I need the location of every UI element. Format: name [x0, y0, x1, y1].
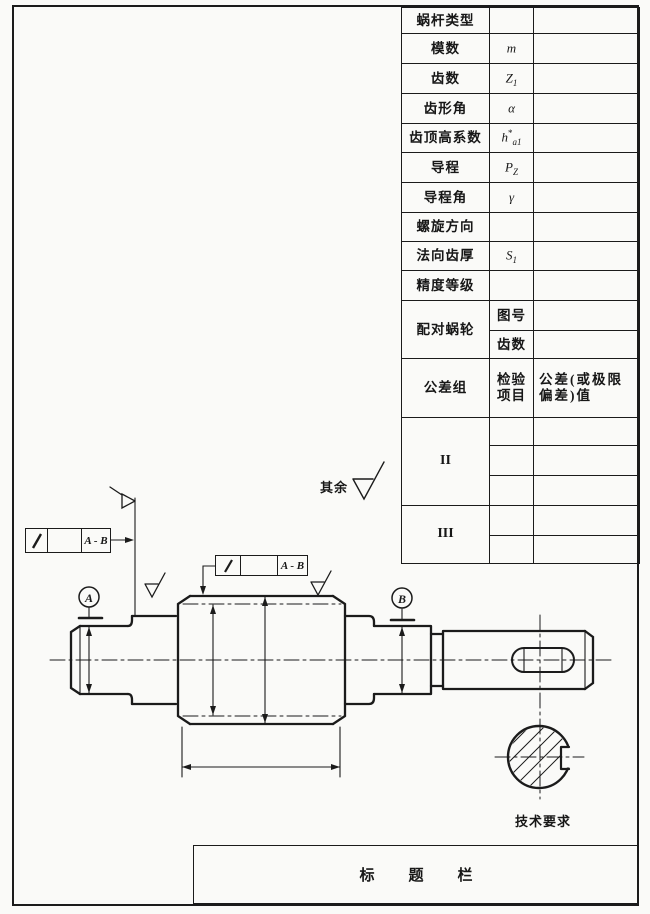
- runout-icon: [215, 555, 241, 576]
- param-label: 齿数: [402, 64, 490, 94]
- worm-parameter-table: 蜗杆类型 模数 m 齿数 Z1 齿形角 α 齿顶高系数 h*a1: [401, 7, 640, 564]
- title-bar-label: 标题栏: [359, 864, 506, 885]
- datum-symbols: [79, 587, 412, 608]
- inspection-items-header: 检验项目: [490, 359, 534, 418]
- tolerance-value-cell: [241, 555, 278, 576]
- runout-tolerance-frame-top: A - B: [215, 555, 308, 576]
- sub-label: 齿数: [490, 331, 534, 359]
- param-label: 蜗杆类型: [402, 8, 490, 34]
- table-row: II: [402, 418, 640, 446]
- rest-surfaces-label: 其余: [320, 477, 348, 496]
- table-row: 精度等级: [402, 271, 640, 301]
- param-label: 配对蜗轮: [402, 301, 490, 359]
- runout-tolerance-frame-left: A - B: [25, 528, 111, 553]
- table-row: 配对蜗轮 图号: [402, 301, 640, 331]
- datum-a-label: A: [84, 591, 93, 605]
- param-symbol: S1: [490, 242, 534, 271]
- table-row: 蜗杆类型: [402, 8, 640, 34]
- param-symbol: m: [490, 34, 534, 64]
- table-row: 公差组 检验项目 公差(或极限偏差)值: [402, 359, 640, 418]
- drawing-sheet: A B A - B: [0, 0, 650, 914]
- param-label: 公差组: [402, 359, 490, 418]
- param-label: 导程: [402, 153, 490, 183]
- table-row: 模数 m: [402, 34, 640, 64]
- table-row: 螺旋方向: [402, 213, 640, 242]
- hatching: [414, 592, 649, 827]
- section-view: [414, 592, 649, 827]
- dimension-lines: [86, 498, 405, 777]
- technical-requirements-label: 技术要求: [505, 811, 581, 830]
- table-row: 导程角 γ: [402, 183, 640, 213]
- table-row: III: [402, 506, 640, 536]
- table-row: 导程 PZ: [402, 153, 640, 183]
- tolerance-group-2: II: [402, 418, 490, 506]
- datum-reference-label: A - B: [82, 528, 111, 553]
- tolerance-value-cell: [48, 528, 82, 553]
- param-symbol: PZ: [490, 153, 534, 183]
- param-symbol: α: [490, 94, 534, 124]
- param-label: 模数: [402, 34, 490, 64]
- datum-reference-label: A - B: [278, 555, 308, 576]
- runout-icon: [25, 528, 48, 553]
- param-label: 齿形角: [402, 94, 490, 124]
- title-bar-box: 标题栏: [193, 845, 639, 904]
- param-label: 精度等级: [402, 271, 490, 301]
- datum-b-label: B: [397, 592, 406, 606]
- table-row: 齿顶高系数 h*a1: [402, 124, 640, 153]
- param-label: 导程角: [402, 183, 490, 213]
- param-label: 法向齿厚: [402, 242, 490, 271]
- table-row: 齿形角 α: [402, 94, 640, 124]
- param-label: 齿顶高系数: [402, 124, 490, 153]
- param-label: 螺旋方向: [402, 213, 490, 242]
- param-symbol: Z1: [490, 64, 534, 94]
- tolerance-header: 公差(或极限偏差)值: [534, 359, 640, 418]
- table-row: 法向齿厚 S1: [402, 242, 640, 271]
- table-row: 齿数 Z1: [402, 64, 640, 94]
- param-symbol: h*a1: [490, 124, 534, 153]
- sub-label: 图号: [490, 301, 534, 331]
- param-symbol: γ: [490, 183, 534, 213]
- tolerance-group-3: III: [402, 506, 490, 564]
